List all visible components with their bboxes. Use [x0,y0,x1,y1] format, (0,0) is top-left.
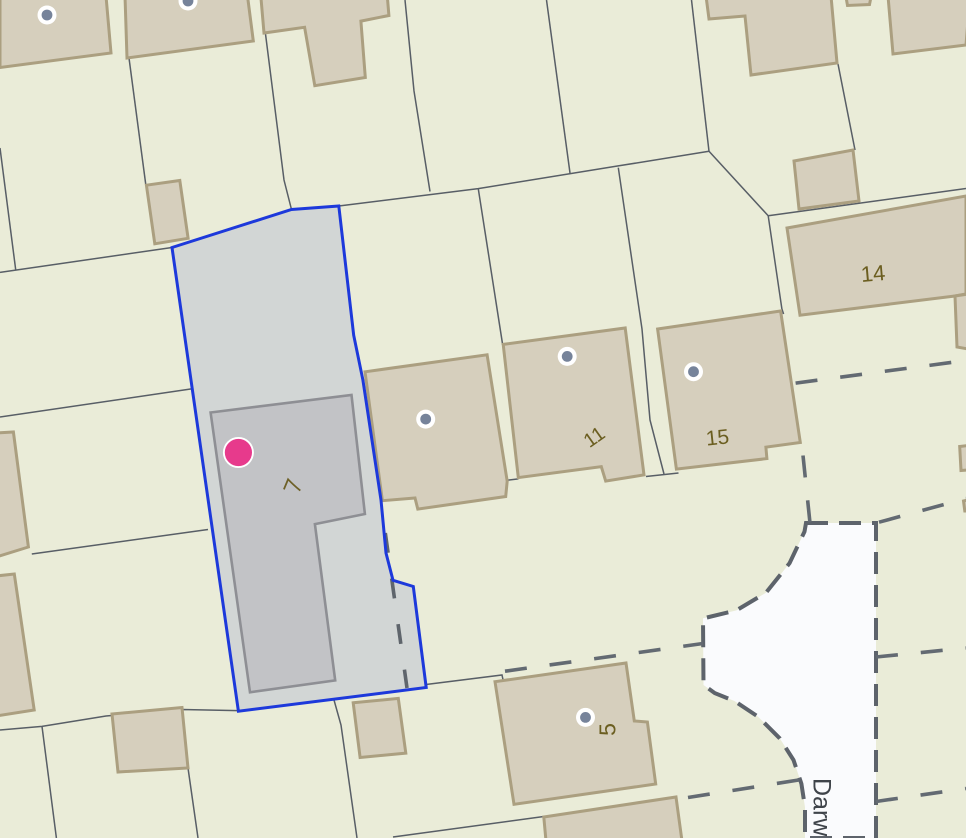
svg-text:5: 5 [595,723,621,736]
svg-text:15: 15 [705,425,731,450]
svg-text:Darwin: Darwin [808,778,836,838]
svg-text:14: 14 [860,260,887,287]
